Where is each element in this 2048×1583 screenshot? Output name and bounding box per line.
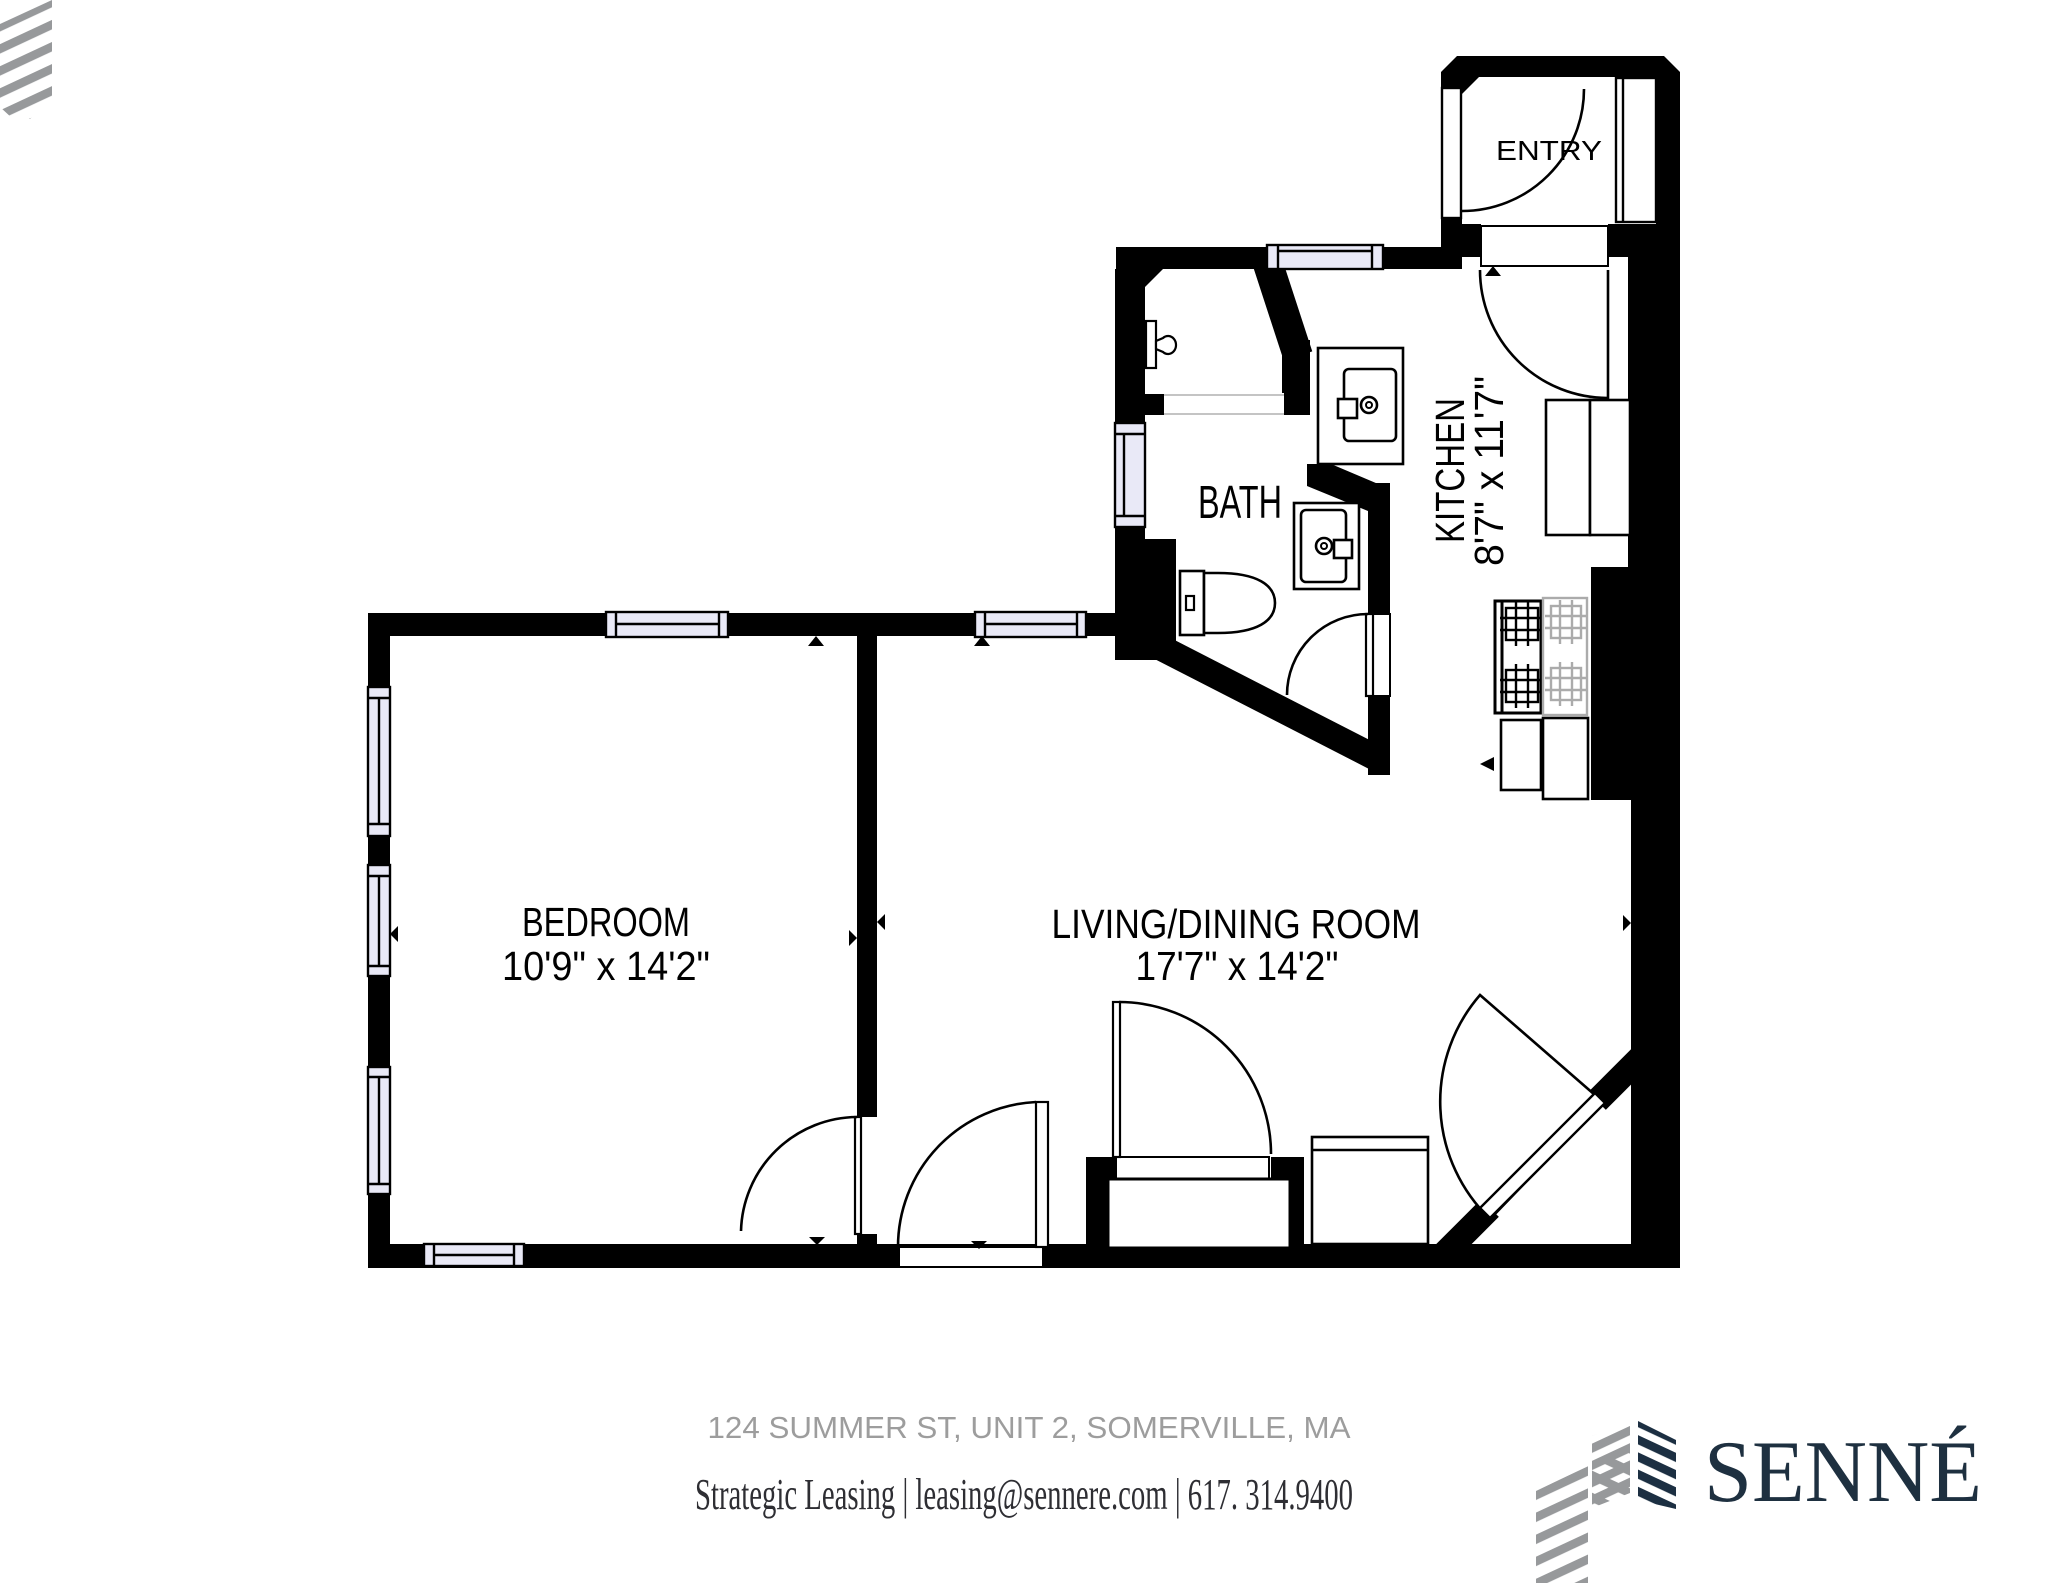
svg-text:124 SUMMER ST, UNIT 2, SOMERVI: 124 SUMMER ST, UNIT 2, SOMERVILLE, MA bbox=[708, 1410, 1351, 1445]
svg-text:17'7" x 14'2": 17'7" x 14'2" bbox=[1136, 943, 1339, 989]
svg-text:LIVING/DINING ROOM: LIVING/DINING ROOM bbox=[1052, 901, 1421, 947]
svg-text:ENTRY: ENTRY bbox=[1496, 135, 1602, 166]
svg-text:Strategic Leasing | leasing@se: Strategic Leasing | leasing@sennere.com … bbox=[695, 1470, 1353, 1519]
svg-text:8'7" x 11'7": 8'7" x 11'7" bbox=[1466, 376, 1512, 566]
svg-text:SENNÉ: SENNÉ bbox=[1704, 1424, 1982, 1521]
svg-text:10'9" x 14'2": 10'9" x 14'2" bbox=[502, 943, 710, 989]
svg-text:BATH: BATH bbox=[1198, 476, 1282, 528]
svg-text:BEDROOM: BEDROOM bbox=[522, 899, 690, 945]
